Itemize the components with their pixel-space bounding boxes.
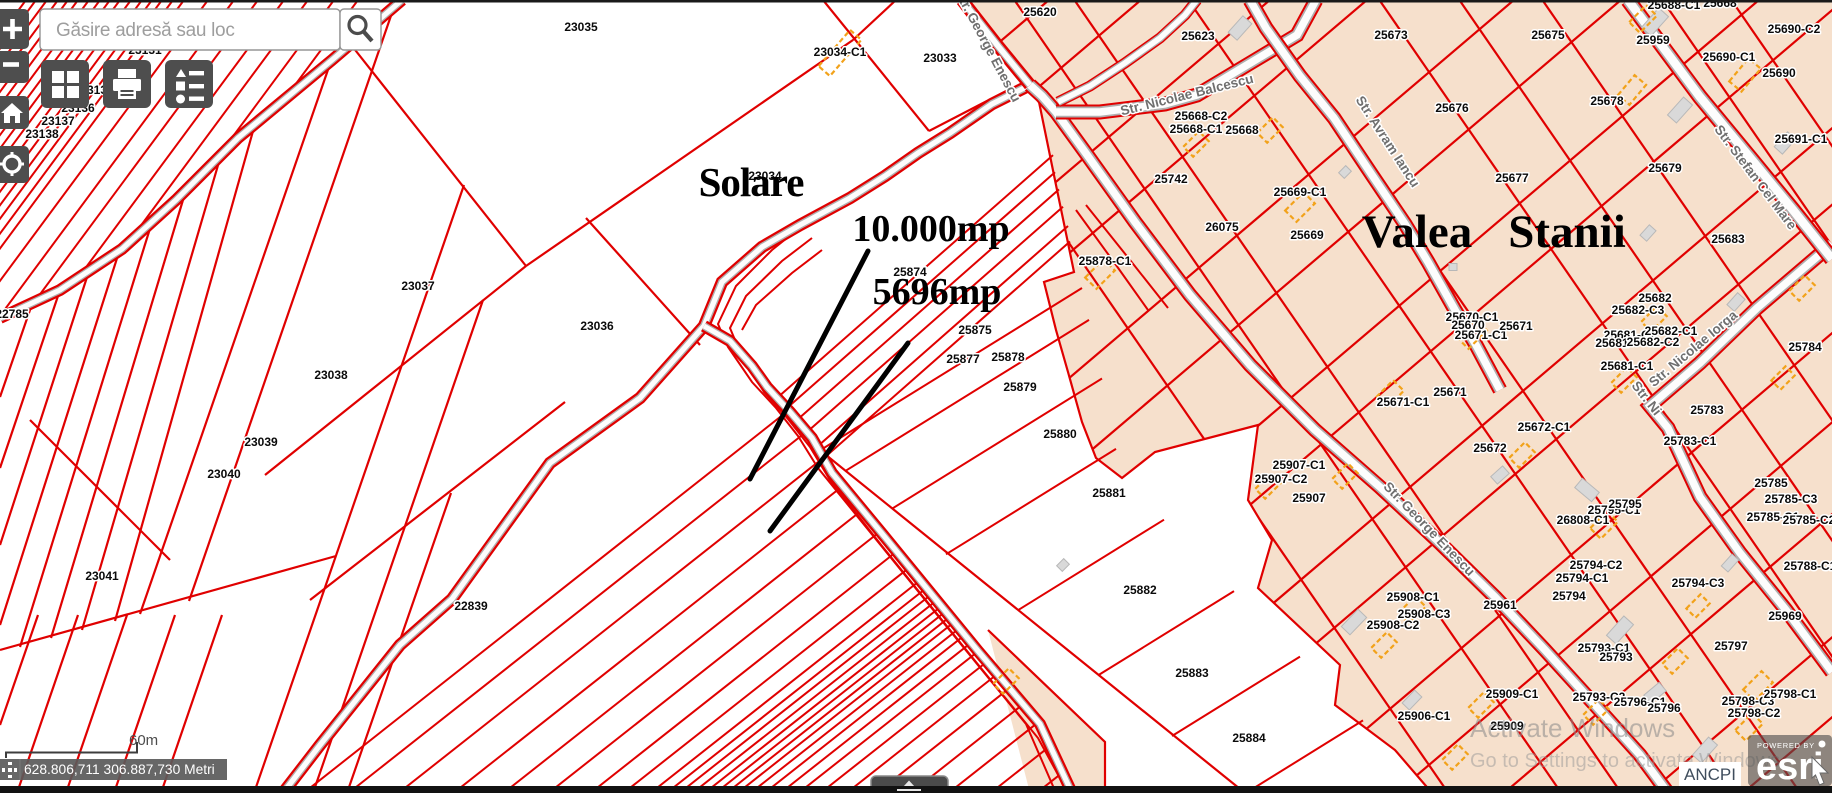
svg-text:628.806,711 306.887,730 Metri: 628.806,711 306.887,730 Metri bbox=[24, 762, 215, 777]
svg-text:25672: 25672 bbox=[1473, 441, 1507, 455]
svg-text:25669-C1: 25669-C1 bbox=[1274, 185, 1327, 199]
svg-text:25679: 25679 bbox=[1648, 161, 1682, 175]
svg-text:25678: 25678 bbox=[1590, 94, 1624, 108]
svg-text:25907-C1: 25907-C1 bbox=[1273, 458, 1326, 472]
svg-text:26808-C1: 26808-C1 bbox=[1557, 513, 1610, 527]
svg-text:25671: 25671 bbox=[1433, 385, 1467, 399]
svg-text:25673: 25673 bbox=[1374, 28, 1408, 42]
svg-text:25668-C2: 25668-C2 bbox=[1175, 109, 1228, 123]
svg-text:26075: 26075 bbox=[1205, 220, 1239, 234]
svg-text:23033: 23033 bbox=[923, 51, 957, 65]
svg-text:22839: 22839 bbox=[454, 599, 488, 613]
svg-text:25793: 25793 bbox=[1599, 650, 1633, 664]
svg-text:25742: 25742 bbox=[1154, 172, 1188, 186]
svg-text:25884: 25884 bbox=[1232, 731, 1266, 745]
svg-text:25961: 25961 bbox=[1483, 598, 1517, 612]
svg-text:25878: 25878 bbox=[991, 350, 1025, 364]
svg-text:25691-C1: 25691-C1 bbox=[1775, 132, 1828, 146]
svg-text:25785-C2: 25785-C2 bbox=[1783, 513, 1832, 527]
svg-text:25798-C1: 25798-C1 bbox=[1764, 687, 1817, 701]
svg-text:25672-C1: 25672-C1 bbox=[1518, 420, 1571, 434]
svg-text:25683: 25683 bbox=[1711, 232, 1745, 246]
svg-text:25794-C3: 25794-C3 bbox=[1672, 576, 1725, 590]
svg-text:60m: 60m bbox=[129, 732, 158, 749]
svg-text:25880: 25880 bbox=[1043, 427, 1077, 441]
svg-text:23034-C1: 23034-C1 bbox=[814, 45, 867, 59]
svg-text:25875: 25875 bbox=[958, 323, 992, 337]
svg-text:25675: 25675 bbox=[1531, 28, 1565, 42]
svg-text:25668: 25668 bbox=[1225, 123, 1259, 137]
svg-text:25969: 25969 bbox=[1768, 609, 1802, 623]
svg-text:23036: 23036 bbox=[580, 319, 614, 333]
svg-text:25798-C2: 25798-C2 bbox=[1728, 706, 1781, 720]
svg-text:25883: 25883 bbox=[1175, 666, 1209, 680]
svg-text:25794-C2: 25794-C2 bbox=[1570, 558, 1623, 572]
svg-text:25681: 25681 bbox=[1595, 336, 1629, 350]
svg-text:25877: 25877 bbox=[946, 352, 980, 366]
svg-text:25907: 25907 bbox=[1292, 491, 1326, 505]
svg-text:23041: 23041 bbox=[85, 569, 119, 583]
svg-text:25681-C1: 25681-C1 bbox=[1601, 359, 1654, 373]
svg-text:25690-C1: 25690-C1 bbox=[1703, 50, 1756, 64]
svg-text:25878-C1: 25878-C1 bbox=[1079, 254, 1132, 268]
svg-text:23037: 23037 bbox=[401, 279, 435, 293]
svg-text:25909-C1: 25909-C1 bbox=[1486, 687, 1539, 701]
svg-text:25906-C1: 25906-C1 bbox=[1398, 709, 1451, 723]
svg-text:25623: 25623 bbox=[1181, 29, 1215, 43]
svg-text:23039: 23039 bbox=[244, 435, 278, 449]
svg-text:25907-C2: 25907-C2 bbox=[1255, 472, 1308, 486]
svg-text:25668-C1: 25668-C1 bbox=[1170, 122, 1223, 136]
svg-text:25797: 25797 bbox=[1714, 639, 1748, 653]
svg-text:25620: 25620 bbox=[1023, 5, 1057, 19]
svg-text:25671-C1: 25671-C1 bbox=[1377, 395, 1430, 409]
svg-text:23035: 23035 bbox=[564, 20, 598, 34]
svg-text:ANCPI: ANCPI bbox=[1684, 765, 1736, 784]
svg-text:23137: 23137 bbox=[41, 114, 75, 128]
svg-text:25669: 25669 bbox=[1290, 228, 1324, 242]
svg-text:25784: 25784 bbox=[1788, 340, 1822, 354]
svg-text:25785-C3: 25785-C3 bbox=[1765, 492, 1818, 506]
svg-text:25788-C1: 25788-C1 bbox=[1784, 559, 1832, 573]
svg-text:22785: 22785 bbox=[0, 307, 29, 321]
svg-text:25879: 25879 bbox=[1003, 380, 1037, 394]
svg-text:25783-C1: 25783-C1 bbox=[1664, 434, 1717, 448]
svg-text:25671: 25671 bbox=[1499, 319, 1533, 333]
svg-text:10.000mp: 10.000mp bbox=[852, 208, 1009, 250]
svg-text:25794: 25794 bbox=[1552, 589, 1586, 603]
svg-text:5696mp: 5696mp bbox=[873, 271, 1002, 313]
svg-text:25785: 25785 bbox=[1754, 476, 1788, 490]
svg-text:25795: 25795 bbox=[1608, 497, 1642, 511]
svg-text:Găsire adresă sau loc: Găsire adresă sau loc bbox=[56, 20, 235, 41]
svg-text:25908-C1: 25908-C1 bbox=[1387, 590, 1440, 604]
svg-text:25959: 25959 bbox=[1636, 33, 1670, 47]
svg-text:25690-C2: 25690-C2 bbox=[1768, 22, 1821, 36]
svg-text:23040: 23040 bbox=[207, 467, 241, 481]
svg-text:25682-C2: 25682-C2 bbox=[1627, 335, 1680, 349]
svg-text:Activate Windows: Activate Windows bbox=[1470, 713, 1675, 743]
svg-text:Solare: Solare bbox=[699, 159, 805, 205]
svg-text:25783: 25783 bbox=[1690, 403, 1724, 417]
svg-text:25881: 25881 bbox=[1092, 486, 1126, 500]
svg-text:25794-C1: 25794-C1 bbox=[1556, 571, 1609, 585]
svg-text:23038: 23038 bbox=[314, 368, 348, 382]
svg-text:25908-C2: 25908-C2 bbox=[1367, 618, 1420, 632]
svg-text:25676: 25676 bbox=[1435, 101, 1469, 115]
svg-text:Stanii: Stanii bbox=[1508, 206, 1626, 258]
svg-text:Valea: Valea bbox=[1362, 206, 1473, 258]
svg-text:25690: 25690 bbox=[1762, 66, 1796, 80]
svg-text:25682-C3: 25682-C3 bbox=[1612, 303, 1665, 317]
svg-text:25882: 25882 bbox=[1123, 583, 1157, 597]
svg-text:23138: 23138 bbox=[25, 127, 59, 141]
svg-text:25677: 25677 bbox=[1495, 171, 1529, 185]
